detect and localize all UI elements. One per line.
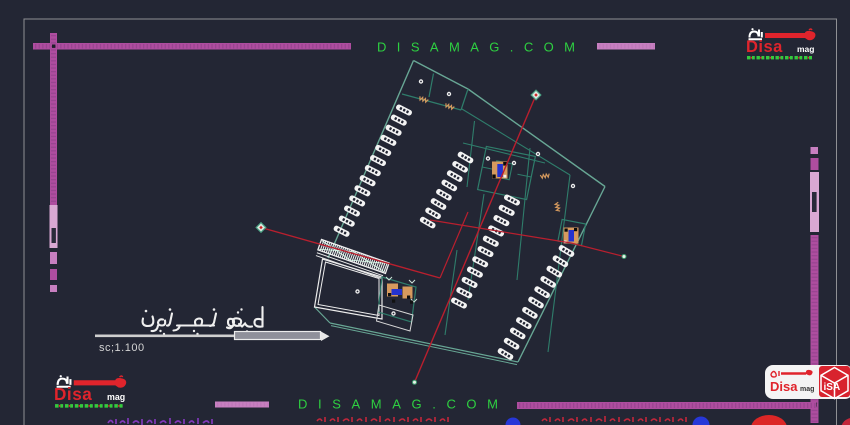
svg-text:Disa: Disa xyxy=(770,379,798,394)
svg-text:mag: mag xyxy=(107,392,125,402)
svg-text:mag: mag xyxy=(800,386,814,393)
svg-text:iSA: iSA xyxy=(824,382,841,393)
svg-text:Disa: Disa xyxy=(746,38,783,56)
svg-text:Disa: Disa xyxy=(54,384,92,404)
svg-text:mag: mag xyxy=(797,44,814,54)
svg-text:sc;1.100: sc;1.100 xyxy=(99,342,145,354)
